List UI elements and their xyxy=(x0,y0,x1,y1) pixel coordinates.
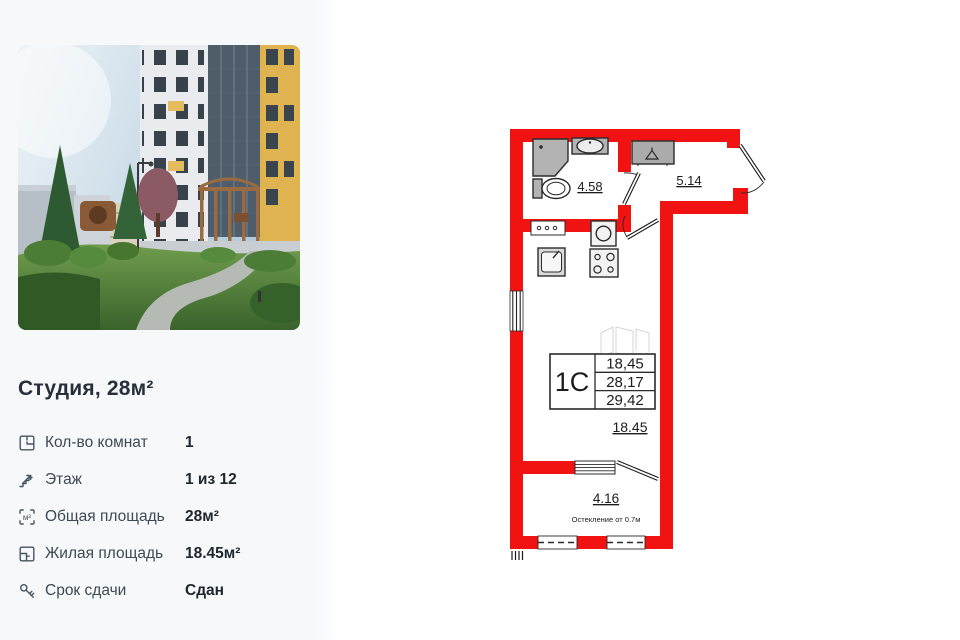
entrance-door xyxy=(740,145,764,193)
unit-label: 1C xyxy=(555,367,590,397)
watermark-sketch xyxy=(601,327,649,357)
floorplan: 1C 18,45 28,17 29,42 4.58 5.14 18.45 4.1… xyxy=(505,121,767,567)
bathroom-door xyxy=(624,173,639,204)
spec-value: 28м² xyxy=(185,508,219,526)
stairs-icon xyxy=(18,471,38,489)
balcony-wall-window xyxy=(575,461,615,474)
bathroom-area-label: 4.58 xyxy=(577,179,602,194)
listing-title: Студия, 28м² xyxy=(18,377,154,401)
total-area-icon: м² xyxy=(18,508,38,526)
spec-label: Жилая площадь xyxy=(45,545,185,563)
toilet xyxy=(533,179,570,199)
spec-label: Кол-во комнат xyxy=(45,434,185,452)
shower-cabin xyxy=(533,139,568,176)
stove xyxy=(590,249,618,277)
spec-row-floor: Этаж 1 из 12 xyxy=(18,461,318,498)
balcony-door xyxy=(617,462,658,479)
spec-row-living-area: Жилая площадь 18.45м² xyxy=(18,535,318,572)
spec-value: Сдан xyxy=(185,582,224,600)
spec-row-delivery: Срок сдачи Сдан xyxy=(18,572,318,609)
listing-page: Студия, 28м² Кол-во комнат 1 Этаж 1 из 1… xyxy=(0,0,960,640)
spec-value: 1 из 12 xyxy=(185,471,237,489)
main-room-area-label: 18.45 xyxy=(612,419,647,435)
spec-label: Этаж xyxy=(45,471,185,489)
spec-row-total-area: м² Общая площадь 28м² xyxy=(18,498,318,535)
property-photo[interactable] xyxy=(18,45,300,330)
glazing-note: Остекление от 0.7м xyxy=(572,515,641,524)
washing-machine xyxy=(591,221,616,246)
property-photo-image xyxy=(18,45,300,330)
stamp-total-area: 28,17 xyxy=(606,374,644,391)
area-icon-glyph: м² xyxy=(23,513,32,522)
wall-section-ticks xyxy=(512,551,523,560)
stamp-living-area: 18,45 xyxy=(606,356,644,373)
bathroom-sink xyxy=(572,138,608,154)
balcony-area-label: 4.16 xyxy=(593,491,619,506)
spec-list: Кол-во комнат 1 Этаж 1 из 12 м² Общая пл… xyxy=(18,424,318,609)
left-wall-window xyxy=(510,291,523,331)
spec-label: Общая площадь xyxy=(45,508,185,526)
living-area-icon xyxy=(18,545,38,563)
fixtures xyxy=(531,138,674,277)
wardrobe xyxy=(632,141,674,166)
spec-label: Срок сдачи xyxy=(45,582,185,600)
key-icon xyxy=(18,582,38,600)
spec-row-rooms: Кол-во комнат 1 xyxy=(18,424,318,461)
rooms-icon xyxy=(18,434,38,452)
spec-value: 18.45м² xyxy=(185,545,240,563)
hallway-area-label: 5.14 xyxy=(676,173,701,188)
unit-stamp: 1C 18,45 28,17 29,42 xyxy=(550,354,655,409)
floorplan-area: 1C 18,45 28,17 29,42 4.58 5.14 18.45 4.1… xyxy=(336,0,960,640)
listing-panel: Студия, 28м² Кол-во комнат 1 Этаж 1 из 1… xyxy=(0,0,336,640)
stamp-area-with-balcony: 29,42 xyxy=(606,392,644,409)
kitchen-sink xyxy=(538,248,565,276)
counter-unit xyxy=(531,221,565,235)
spec-value: 1 xyxy=(185,434,194,452)
